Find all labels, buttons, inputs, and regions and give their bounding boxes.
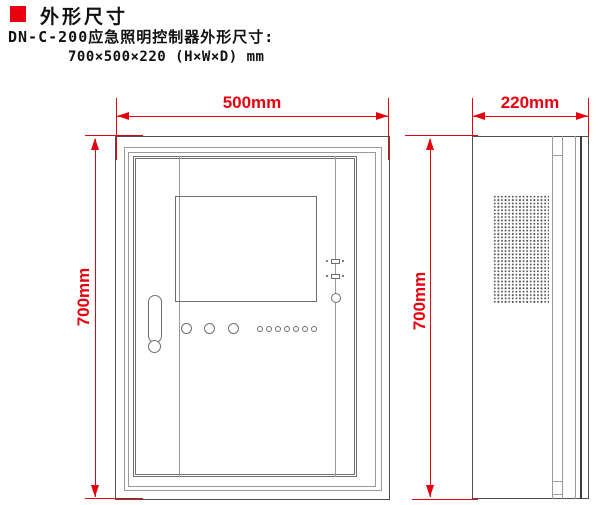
dimensions-text: 700×500×220 (H×W×D) mm xyxy=(68,49,264,65)
panel-seam-line xyxy=(335,156,336,477)
section-bullet-icon xyxy=(10,6,26,22)
indicator-led xyxy=(275,326,281,332)
side-rail-line xyxy=(562,136,563,499)
side-height-dimension-line xyxy=(430,139,431,497)
switch-dot xyxy=(342,275,344,277)
section-title: 外形尺寸 xyxy=(40,2,128,29)
switch-dot xyxy=(342,260,344,262)
arrowhead-up-icon xyxy=(91,138,99,150)
toggle-switch xyxy=(331,274,340,279)
side-depth-dimension-label: 220mm xyxy=(478,93,582,113)
rail-tick xyxy=(552,481,563,482)
indicator-led xyxy=(284,326,290,332)
control-button xyxy=(228,323,239,334)
side-depth-dimension-line xyxy=(473,116,588,117)
front-width-dimension-label: 500mm xyxy=(200,93,304,113)
arrowhead-up-icon xyxy=(426,138,434,150)
door-handle xyxy=(148,295,162,343)
arrowhead-left-icon xyxy=(473,112,485,120)
indicator-led xyxy=(293,326,299,332)
indicator-led xyxy=(266,326,272,332)
extension-line xyxy=(405,135,478,136)
indicator-led xyxy=(311,326,317,332)
front-height-dimension-line xyxy=(95,139,96,497)
front-height-dimension-label: 700mm xyxy=(74,268,94,327)
model-subtitle: DN-C-200应急照明控制器外形尺寸: xyxy=(8,26,274,47)
door-edge-line-dark xyxy=(580,136,582,499)
switch-dot xyxy=(326,260,328,262)
side-cabinet-outline xyxy=(472,136,589,499)
datasheet-page: 外形尺寸 DN-C-200应急照明控制器外形尺寸: 700×500×220 (H… xyxy=(0,0,600,505)
rail-tick xyxy=(552,155,563,156)
arrowhead-down-icon xyxy=(91,485,99,497)
lock-cylinder xyxy=(148,340,161,353)
rail-tick xyxy=(552,494,563,495)
control-button xyxy=(204,323,215,334)
arrowhead-left-icon xyxy=(117,112,129,120)
toggle-switch xyxy=(331,259,340,264)
arrowhead-right-icon xyxy=(576,112,588,120)
switch-dot xyxy=(326,275,328,277)
indicator-led xyxy=(257,326,263,332)
display-screen xyxy=(175,196,317,302)
vent-grille xyxy=(493,195,549,303)
indicator-led xyxy=(302,326,308,332)
control-button xyxy=(181,323,192,334)
extension-line xyxy=(412,499,478,500)
key-switch xyxy=(331,293,341,303)
door-edge-line xyxy=(575,136,576,499)
front-width-dimension-line xyxy=(117,116,388,117)
side-height-dimension-label: 700mm xyxy=(410,272,430,331)
side-rail-line xyxy=(552,136,553,499)
arrowhead-right-icon xyxy=(376,112,388,120)
arrowhead-down-icon xyxy=(426,485,434,497)
